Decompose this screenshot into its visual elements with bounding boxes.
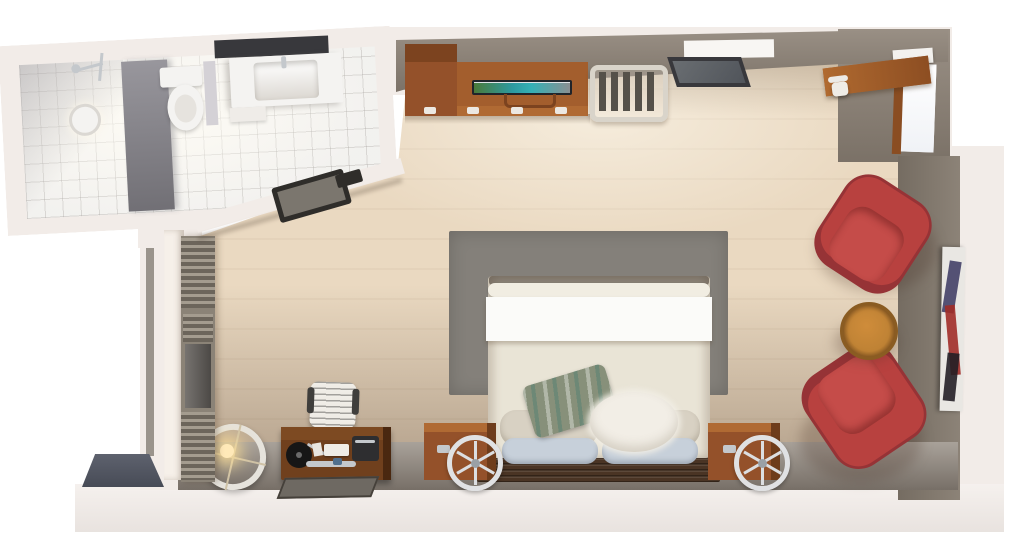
- radiator-slats-bottom: [181, 412, 215, 480]
- pillow-blue-left: [502, 438, 598, 464]
- wheel-clock-left: [447, 435, 503, 491]
- rack-strap-2: [611, 72, 618, 111]
- corner-desk-chair-seat: [831, 81, 849, 97]
- vanity-end-wall: [230, 106, 267, 122]
- drawer-handle-4: [555, 107, 567, 114]
- radiator-glass: [185, 344, 211, 408]
- wheel-left-hub: [471, 459, 480, 468]
- sink-faucet: [281, 56, 287, 68]
- drawer-handle-3: [511, 107, 523, 114]
- wardrobe-top-face: [405, 44, 457, 62]
- radiator-slats-mid: [183, 314, 213, 342]
- rack-strap-3: [623, 72, 630, 111]
- drawer-handle-1: [424, 107, 436, 114]
- pillow-fur-white: [590, 392, 678, 452]
- television: [472, 80, 572, 95]
- desk-floor-mat: [277, 476, 380, 499]
- tv-screen: [474, 82, 570, 93]
- wall-niche: [684, 39, 774, 59]
- wardrobe: [405, 44, 457, 116]
- radiator-slats-top: [181, 238, 215, 308]
- desk-chair-arm-right: [352, 389, 360, 415]
- desk-side-face: [383, 427, 391, 480]
- lamp-glow-bulb: [220, 444, 234, 458]
- rack-strap-1: [599, 72, 606, 111]
- nightstand-right-top: [708, 423, 780, 432]
- nightstand-left-top: [424, 423, 496, 432]
- desk-chair: [309, 381, 357, 429]
- bed-sheet-band: [486, 297, 712, 341]
- tv-stand: [504, 94, 556, 108]
- luggage-rack: [590, 65, 668, 122]
- desk-chair-arm-left: [307, 387, 315, 413]
- rack-strap-5: [647, 72, 654, 111]
- rack-strap-4: [635, 72, 642, 111]
- desk-notepad: [324, 444, 349, 456]
- desk-blue-item: [333, 458, 342, 465]
- wall-artwork: [940, 247, 966, 411]
- floorplan-render: [0, 0, 1024, 544]
- plate-bottom-band: [75, 484, 1004, 532]
- wheel-right-hub: [758, 459, 767, 468]
- telephone-silver-bar: [355, 440, 375, 443]
- record-hub: [296, 452, 302, 458]
- desk-telephone: [352, 436, 379, 461]
- shower-back-wall-shade: [19, 60, 131, 215]
- left-window-exterior-glass: [146, 240, 154, 456]
- lamp-right-silver: [723, 445, 736, 453]
- drawer-handle-2: [467, 107, 479, 114]
- desk-tray-bar: [306, 461, 356, 467]
- art-stroke-dark: [943, 352, 960, 401]
- wheel-clock-right: [734, 435, 790, 491]
- bed-top-roll: [488, 283, 710, 297]
- toilet-bowl-inner: [174, 94, 197, 123]
- radiator-blinds: [181, 236, 215, 482]
- leaning-mirror: [667, 57, 751, 87]
- round-side-table: [840, 302, 898, 360]
- leaning-mirror-glass: [672, 61, 745, 83]
